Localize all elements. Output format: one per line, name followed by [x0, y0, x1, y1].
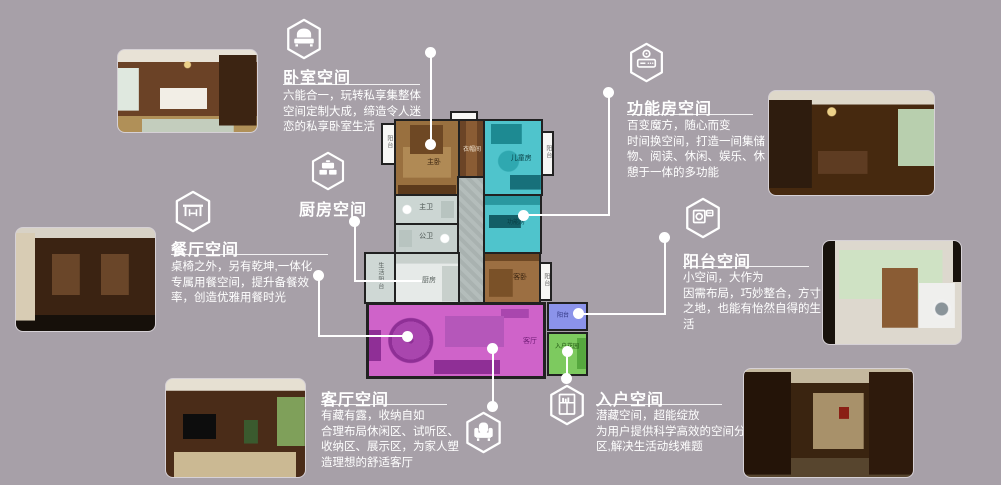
room-label: 衣帽间	[463, 147, 481, 154]
connector-dot	[349, 216, 360, 227]
room-guest-balcony: 阳台	[539, 262, 552, 301]
connector-line	[664, 237, 666, 315]
living-room-photo	[165, 378, 306, 478]
title-underline	[171, 254, 328, 255]
cooking-pot-icon	[310, 151, 346, 191]
section-title-dining: 餐厅空间	[171, 236, 239, 260]
room-label: 阳台	[544, 145, 551, 159]
room-kitchen: 厨房	[394, 252, 460, 304]
washing-machine-icon	[684, 197, 722, 239]
room-living-dining: 客厅	[366, 302, 546, 379]
balcony-photo	[822, 240, 962, 345]
connector-dot	[659, 232, 670, 243]
section-title-entry: 入户空间	[596, 386, 664, 410]
room-kids-room: 儿童房	[483, 119, 543, 196]
connector-dot	[518, 210, 529, 221]
connector-line	[608, 92, 610, 216]
title-underline	[683, 266, 809, 267]
section-desc-entry: 潜藏空间，超能绽放为用户提供科学高效的空间分区,解决生活动线难题	[596, 409, 746, 456]
room-public-bath: 公卫	[394, 223, 459, 254]
room-label: 公卫	[419, 233, 433, 241]
connector-line	[318, 275, 320, 337]
section-title-balcony: 阳台空间	[683, 248, 751, 272]
connector-dot	[487, 343, 498, 354]
entry-cabinet-icon	[547, 384, 587, 426]
title-underline	[596, 404, 722, 405]
room-master-bedroom: 主卧	[394, 119, 460, 196]
bedroom-photo	[117, 49, 258, 133]
connector-dot	[402, 331, 413, 342]
room-label: 厨房	[422, 277, 436, 285]
entrance-photo	[743, 368, 914, 478]
title-underline	[321, 404, 447, 405]
connector-line	[430, 52, 432, 145]
dining-table-icon	[173, 190, 213, 233]
connector-dot	[425, 139, 436, 150]
connector-dot	[562, 346, 573, 357]
room-label: 主卫	[419, 204, 433, 212]
room-label: 客卧	[513, 274, 527, 282]
connector-dot	[487, 401, 498, 412]
title-underline	[627, 114, 753, 115]
room-hallway	[457, 176, 485, 304]
room-balcony-top-right: 阳台	[541, 131, 554, 176]
room-label: 主卧	[427, 159, 441, 167]
infographic-canvas: { "background_color": "#a7a0a8", "accent…	[0, 0, 1001, 485]
connector-dot	[603, 87, 614, 98]
appliance-icon	[628, 42, 665, 83]
connector-dot	[573, 308, 584, 319]
section-desc-balcony: 小空间，大作为因需布局，巧妙整合，方寸之地，也能有怡然自得的生活	[683, 271, 821, 333]
room-label: 儿童房	[511, 155, 532, 163]
bed-icon	[285, 18, 323, 60]
connector-dot	[561, 373, 572, 384]
section-title-function: 功能房空间	[627, 95, 712, 119]
connector-line	[354, 280, 422, 282]
room-label: 阳台	[557, 313, 569, 320]
connector-line	[492, 348, 494, 406]
title-underline	[283, 84, 420, 85]
section-desc-function: 百变魔方，随心而变时间换空间，打造一间集储物、阅读、休闲、娱乐、休憩于一体的多功…	[627, 119, 765, 181]
armchair-icon	[463, 411, 504, 454]
room-label: 客厅	[523, 338, 537, 346]
connector-line	[524, 214, 610, 216]
connector-dot	[313, 270, 324, 281]
connector-line	[579, 313, 665, 315]
section-desc-living: 有藏有露，收纳自如合理布局休闲区、试听区、收纳区、展示区，为家人塑造理想的舒适客…	[321, 409, 459, 471]
room-label: 阳台	[385, 135, 392, 149]
room-guest-bedroom: 客卧	[483, 252, 541, 304]
dining-cabinet-photo	[15, 227, 156, 332]
room-service-balcony: 生活阳台	[364, 252, 396, 304]
connector-dot	[425, 47, 436, 58]
connector-line	[318, 335, 408, 337]
room-label: 生活阳台	[376, 262, 383, 290]
room-label: 阳台	[542, 273, 549, 287]
room-master-bath: 主卫	[394, 194, 459, 225]
function-room-photo	[768, 90, 935, 196]
room-closet: 衣帽间	[458, 119, 485, 178]
section-title-living: 客厅空间	[321, 386, 389, 410]
room-function: 功能房	[483, 194, 542, 254]
connector-line	[354, 221, 356, 282]
section-desc-dining: 桌椅之外，另有乾坤,一体化专属用餐空间，提升备餐效率，创造优雅用餐时光	[171, 260, 312, 307]
floor-plan: 阳台 主卧 衣帽间 儿童房 阳台 主卫 公卫 功能房 厨房 生活阳台 客卧 阳台…	[360, 110, 592, 382]
